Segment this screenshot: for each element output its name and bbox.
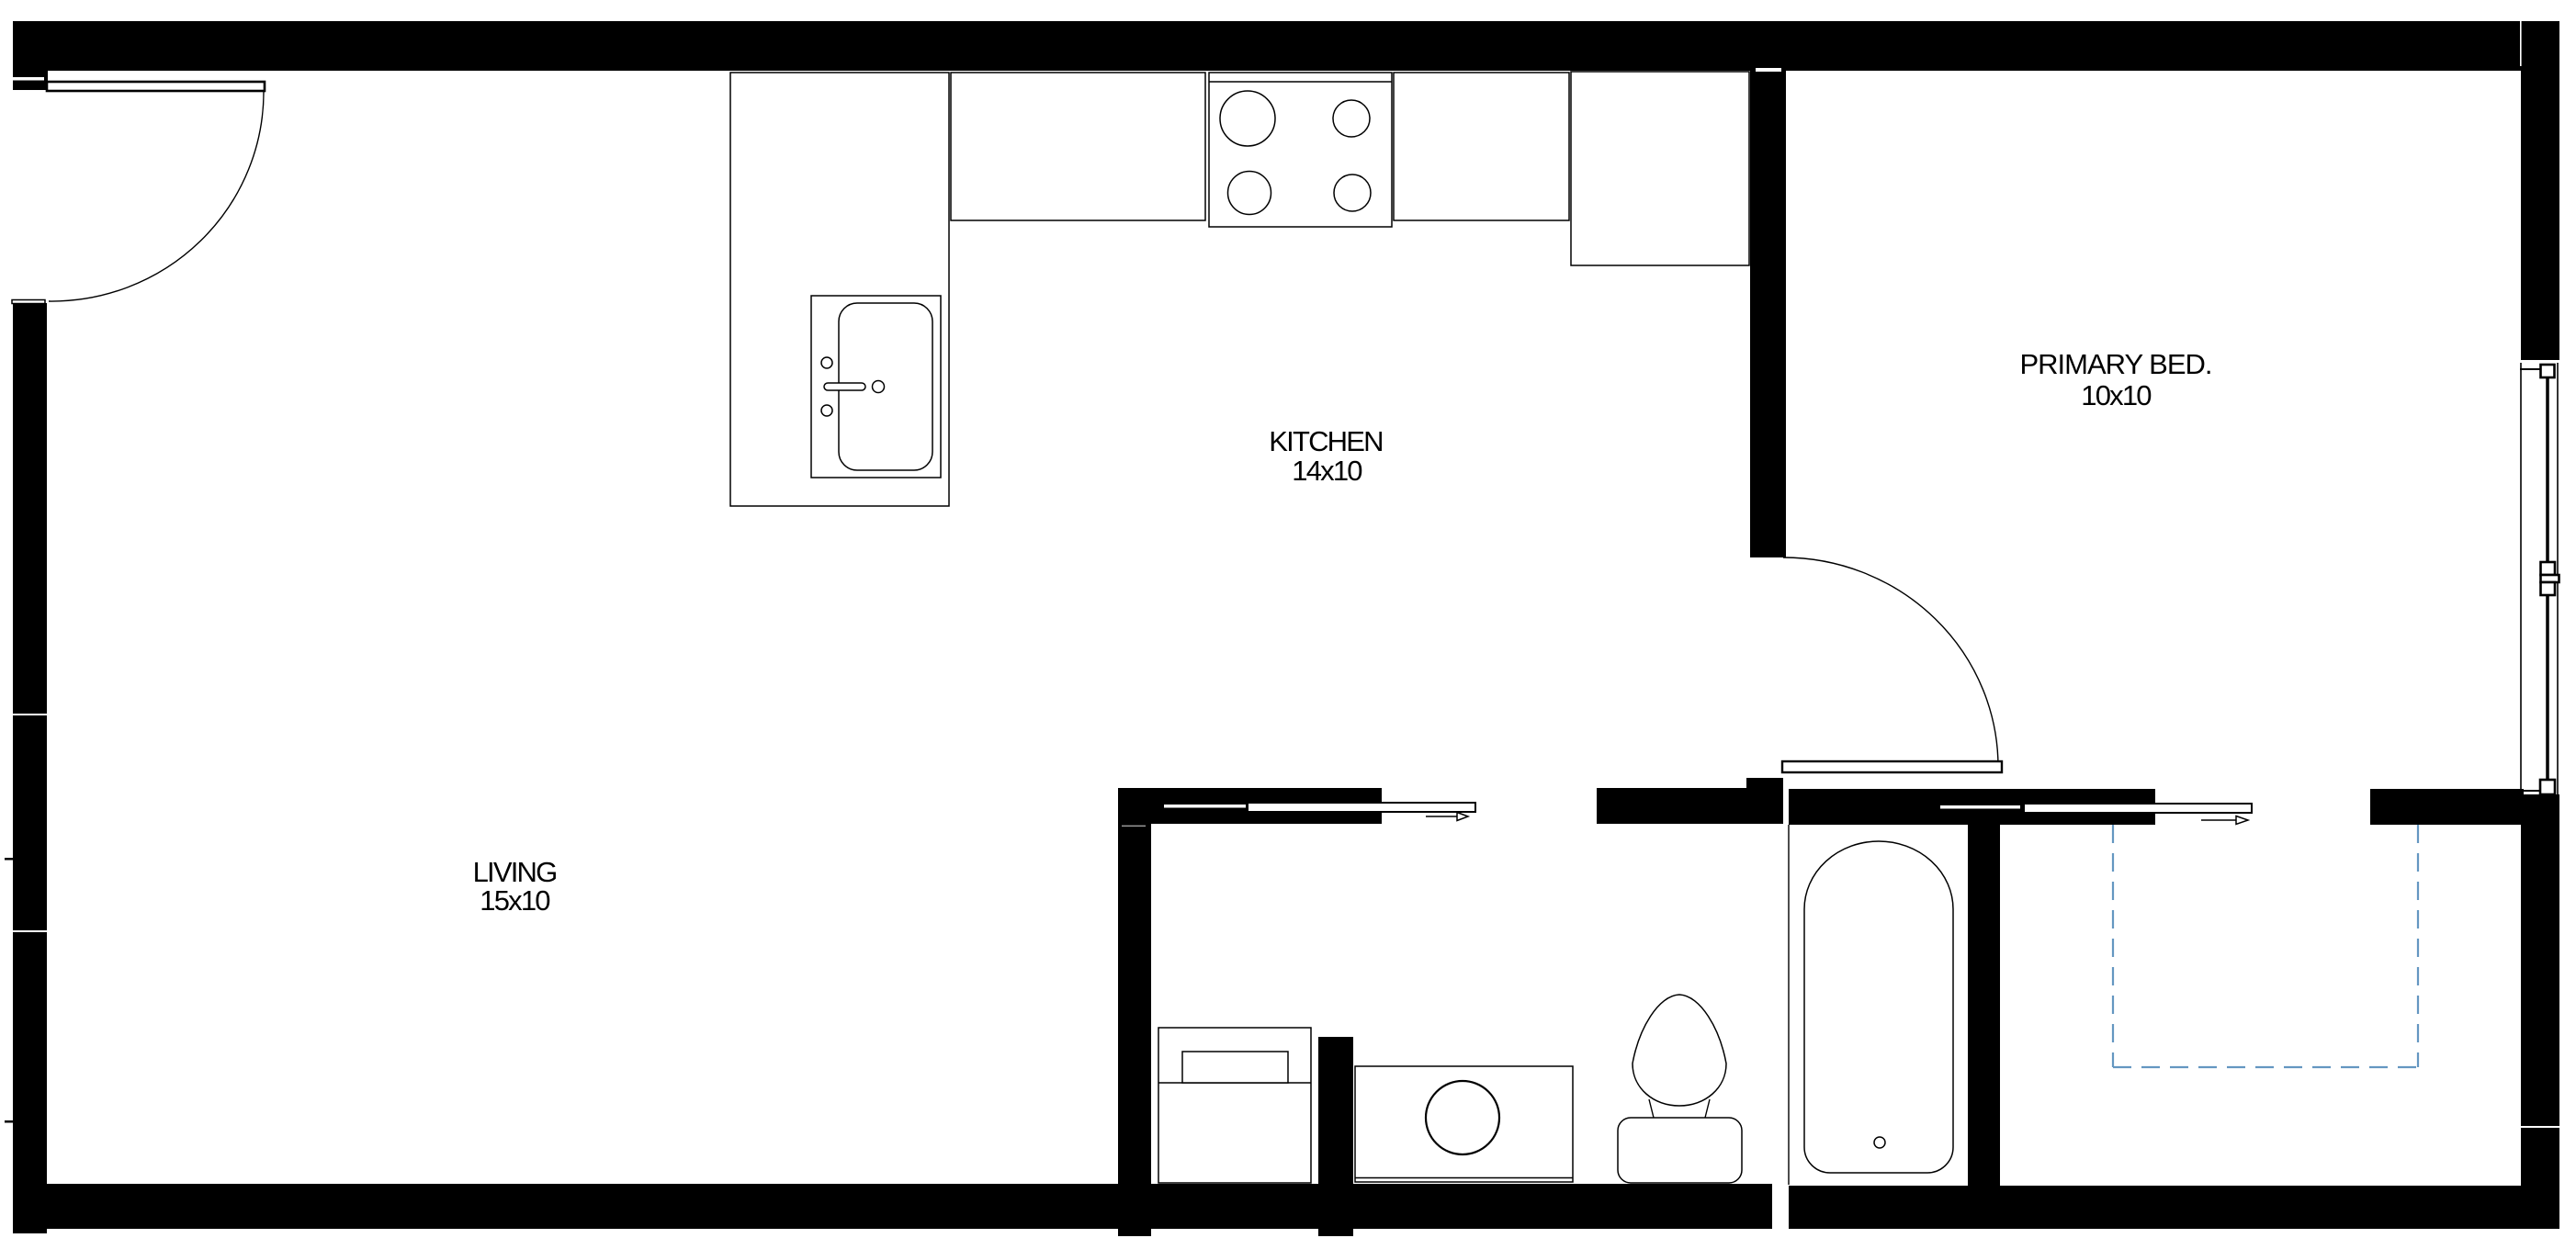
svg-text:15x10: 15x10 bbox=[480, 884, 550, 917]
svg-text:KITCHEN: KITCHEN bbox=[1269, 425, 1382, 457]
svg-text:14x10: 14x10 bbox=[1292, 455, 1362, 487]
svg-text:LIVING: LIVING bbox=[473, 856, 557, 888]
svg-text:PRIMARY BED.: PRIMARY BED. bbox=[2019, 348, 2211, 380]
svg-text:10x10: 10x10 bbox=[2081, 379, 2152, 411]
